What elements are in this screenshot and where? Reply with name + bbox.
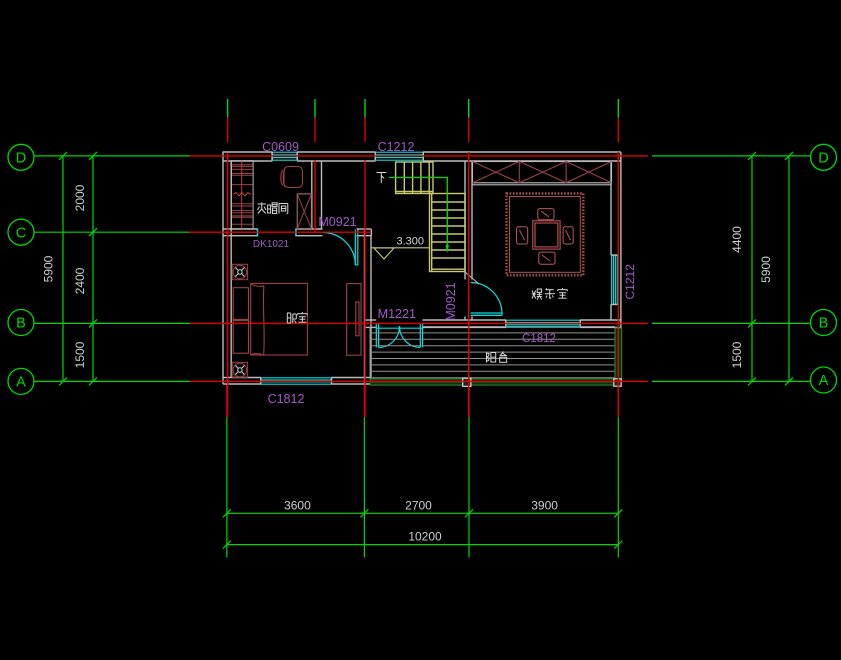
svg-text:2000: 2000: [73, 184, 87, 211]
svg-text:D: D: [16, 151, 26, 167]
svg-text:D: D: [818, 151, 828, 167]
svg-text:4400: 4400: [730, 226, 744, 253]
svg-text:C1212: C1212: [623, 264, 637, 300]
svg-text:B: B: [16, 316, 26, 332]
svg-text:3600: 3600: [284, 499, 311, 513]
svg-text:A: A: [819, 373, 829, 389]
svg-text:A: A: [16, 375, 26, 391]
svg-text:5900: 5900: [759, 256, 773, 283]
svg-text:5900: 5900: [42, 255, 56, 282]
svg-text:1500: 1500: [730, 341, 744, 368]
svg-text:B: B: [819, 316, 829, 332]
svg-text:C0609: C0609: [262, 140, 299, 154]
svg-text:1500: 1500: [73, 341, 87, 368]
svg-text:C1212: C1212: [378, 140, 415, 154]
svg-text:3900: 3900: [531, 499, 558, 513]
svg-text:C1812: C1812: [522, 333, 556, 345]
svg-text:3.300: 3.300: [397, 236, 425, 248]
svg-text:M0921: M0921: [444, 282, 458, 320]
svg-text:2400: 2400: [73, 267, 87, 294]
svg-text:DK1021: DK1021: [253, 239, 290, 250]
svg-text:10200: 10200: [408, 530, 442, 544]
svg-text:M1221: M1221: [378, 307, 416, 321]
svg-text:C: C: [16, 225, 26, 241]
svg-text:M0921: M0921: [318, 215, 356, 229]
svg-text:2700: 2700: [405, 499, 432, 513]
svg-text:C1812: C1812: [268, 392, 305, 406]
